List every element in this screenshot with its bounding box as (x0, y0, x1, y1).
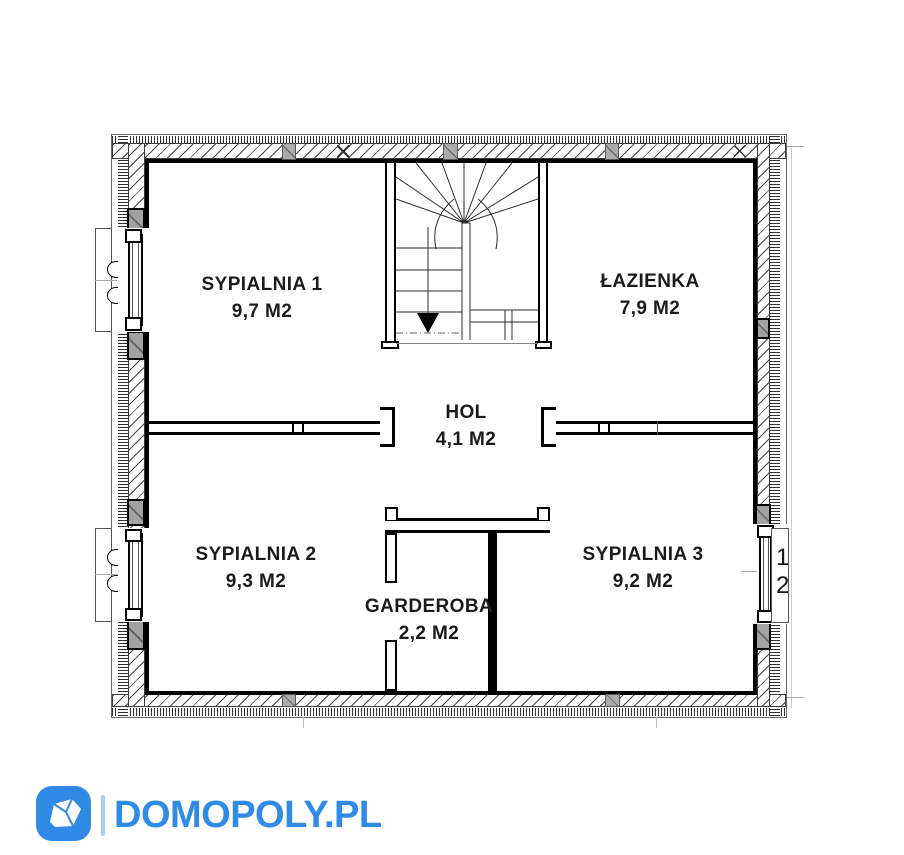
wall-post (605, 143, 619, 160)
wall-joint (598, 421, 600, 435)
wall-post (127, 620, 145, 650)
window-glass-line (132, 538, 139, 612)
room-area: 7,9 M2 (600, 295, 699, 322)
wall-joint (657, 421, 658, 435)
insulation-band-top (112, 136, 786, 143)
staircase-drawing (396, 163, 538, 345)
stair-treads (396, 248, 462, 312)
window-glass-line (132, 239, 139, 321)
brand-separator (101, 795, 105, 836)
door-jamb (541, 407, 556, 447)
window-exterior-box (95, 528, 112, 622)
winder-treads (396, 163, 538, 223)
room-name: SYPIALNIA 1 (202, 271, 323, 298)
wall-post (282, 143, 296, 160)
window-jamb (125, 608, 142, 621)
house-gem-icon (36, 786, 91, 841)
wall-post (127, 499, 145, 526)
window-dimension-text: 2 (776, 573, 789, 599)
stair-stringer (462, 223, 470, 340)
brand-footer: DOMOPOLY.PL (36, 786, 416, 846)
wall-post (127, 331, 145, 360)
wall-hatch-bottom (112, 694, 786, 707)
insulation-band-right (770, 136, 780, 716)
stairs-down-arrow (417, 313, 439, 333)
door-jamb (385, 507, 398, 520)
room-label-garderoba: GARDEROBA 2,2 M2 (365, 593, 493, 647)
room-name: SYPIALNIA 3 (583, 541, 704, 568)
room-label-hol: HOL 4,1 M2 (436, 399, 497, 453)
window-jamb (125, 529, 142, 542)
joint-x-mark (337, 145, 350, 158)
window-jamb (125, 317, 142, 331)
window-center-line (741, 571, 757, 572)
room-name: HOL (436, 399, 497, 426)
wall-joint (608, 421, 610, 435)
insulation-band-bottom (112, 708, 786, 716)
door-jamb (380, 407, 395, 447)
wall-joint (302, 421, 304, 435)
window-dimension-text: 1 (776, 545, 789, 571)
window-center-line (95, 280, 117, 281)
hall-wall-right (553, 421, 753, 435)
window-jamb (125, 229, 142, 243)
window-hinge (107, 261, 118, 278)
brand-logo-icon (36, 786, 91, 841)
room-area: 9,7 M2 (202, 298, 323, 325)
window-center-line (95, 574, 117, 575)
room-area: 2,2 M2 (365, 620, 493, 647)
stair-landing-lines (470, 310, 538, 340)
wall-joint (292, 421, 294, 435)
wall-post (755, 622, 771, 650)
hall-wall-left (149, 421, 383, 435)
wall-post (282, 694, 296, 707)
room-name: GARDEROBA (365, 593, 493, 620)
reference-line (791, 148, 792, 708)
room-label-sypialnia-2: SYPIALNIA 2 9,3 M2 (196, 541, 317, 595)
winder-arc (478, 199, 497, 249)
room-label-sypialnia-1: SYPIALNIA 1 9,7 M2 (202, 271, 323, 325)
room-area: 9,3 M2 (196, 568, 317, 595)
stair-wall-left (385, 163, 396, 341)
reference-tick (303, 717, 304, 728)
reference-line (787, 146, 804, 147)
closet-wall-left-lower (385, 640, 397, 691)
reference-tick (656, 717, 657, 728)
wall-post (443, 143, 458, 160)
room-name: SYPIALNIA 2 (196, 541, 317, 568)
room-label-lazienka: ŁAZIENKA 7,9 M2 (600, 268, 699, 322)
joint-x-mark (734, 145, 746, 157)
door-jamb (537, 507, 550, 520)
closet-wall-top (385, 518, 550, 533)
wall-post (755, 504, 771, 526)
stair-wall-right (538, 163, 548, 341)
window-glass-line (763, 536, 769, 613)
wall-post (756, 318, 770, 339)
reference-line (787, 697, 804, 698)
floorplan-screenshot: 1 2 SYPIALNIA (0, 0, 904, 855)
window-hinge (107, 287, 118, 304)
room-area: 4,1 M2 (436, 426, 497, 453)
brand-name: DOMOPOLY.PL (114, 794, 382, 837)
window-dimension-box: 1 2 (771, 528, 789, 623)
wall-post (605, 694, 620, 707)
window-hinge (107, 549, 118, 566)
closet-wall-left-upper (385, 533, 397, 583)
window-hinge (107, 575, 118, 592)
room-area: 9,2 M2 (583, 568, 704, 595)
room-label-sypialnia-3: SYPIALNIA 3 9,2 M2 (583, 541, 704, 595)
room-name: ŁAZIENKA (600, 268, 699, 295)
